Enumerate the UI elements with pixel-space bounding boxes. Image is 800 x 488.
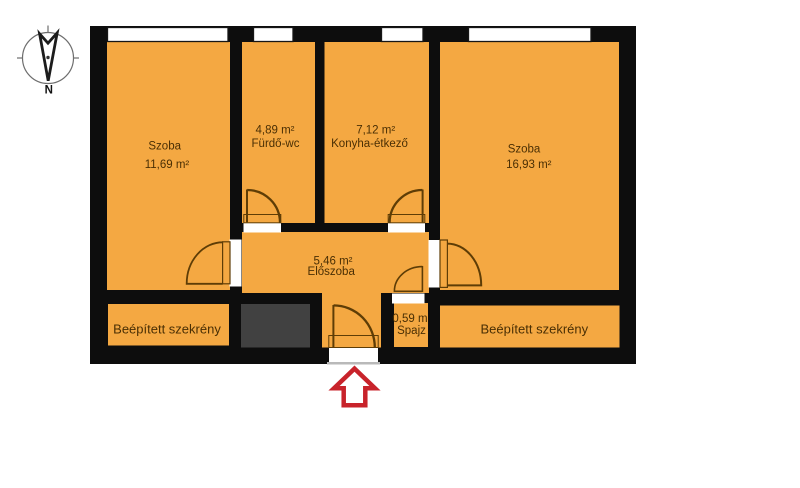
svg-text:Beépített szekrény: Beépített szekrény: [480, 321, 588, 336]
svg-text:0,59 m: 0,59 m: [392, 313, 427, 325]
svg-text:16,93 m²: 16,93 m²: [506, 159, 552, 171]
svg-text:7,12 m²: 7,12 m²: [356, 125, 395, 137]
svg-text:Szoba: Szoba: [508, 144, 541, 156]
svg-text:11,69 m²: 11,69 m²: [145, 159, 190, 171]
svg-text:Konyha-étkező: Konyha-étkező: [331, 138, 408, 150]
svg-text:N: N: [45, 85, 53, 97]
svg-text:Szoba: Szoba: [148, 141, 181, 153]
svg-text:Fürdő-wc: Fürdő-wc: [252, 138, 300, 150]
svg-text:4,89 m²: 4,89 m²: [256, 125, 295, 137]
svg-text:Beépített szekrény: Beépített szekrény: [113, 321, 221, 336]
svg-text:Spajz: Spajz: [397, 325, 426, 337]
svg-text:Előszoba: Előszoba: [308, 266, 356, 278]
